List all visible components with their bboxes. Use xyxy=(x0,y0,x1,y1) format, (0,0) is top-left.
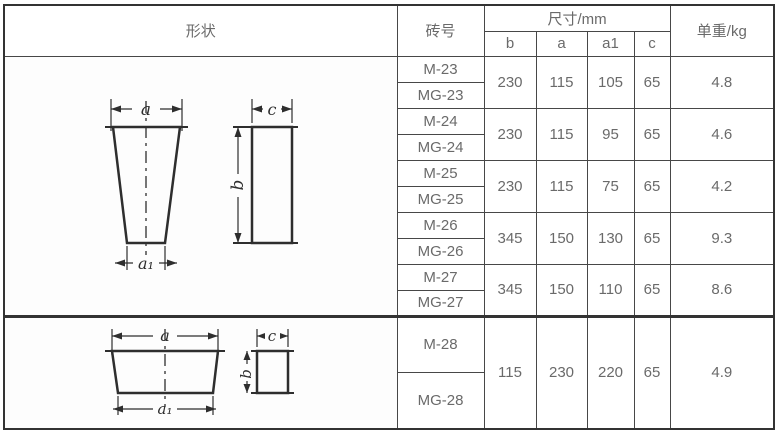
header-unit-weight: 单重/kg xyxy=(670,5,774,56)
dim-c-cell: 65 xyxy=(634,212,670,264)
header-brick-no: 砖号 xyxy=(397,5,484,56)
weight-cell: 4.6 xyxy=(670,108,774,160)
dim-label-a1: a₁ xyxy=(158,400,173,418)
dim-a-cell: 150 xyxy=(536,264,587,316)
flat-wedge-drawing: a a₁ c b xyxy=(5,318,396,428)
brick-no-cell: MG-25 xyxy=(397,186,484,212)
dim-a-cell: 150 xyxy=(536,212,587,264)
dim-c-cell: 65 xyxy=(634,264,670,316)
brick-no-cell: MG-27 xyxy=(397,290,484,316)
dim-label-c: c xyxy=(268,327,277,345)
brick-no-cell: MG-24 xyxy=(397,134,484,160)
dim-a-cell: 115 xyxy=(536,160,587,212)
weight-cell: 8.6 xyxy=(670,264,774,316)
header-dim-a1: a1 xyxy=(587,31,634,56)
weight-cell: 4.8 xyxy=(670,56,774,108)
brick-no-cell: M-25 xyxy=(397,160,484,186)
dim-a-cell: 230 xyxy=(536,316,587,429)
dim-c-cell: 65 xyxy=(634,316,670,429)
dim-c-cell: 65 xyxy=(634,108,670,160)
brick-no-cell: M-23 xyxy=(397,56,484,82)
dim-b-cell: 345 xyxy=(484,264,536,316)
tapered-wedge-drawing: a a₁ c b xyxy=(5,57,396,315)
dim-label-c: c xyxy=(268,100,277,119)
header-dimensions: 尺寸/mm xyxy=(484,5,670,31)
dim-a-cell: 115 xyxy=(536,56,587,108)
dim-b-cell: 230 xyxy=(484,108,536,160)
brick-no-cell: MG-26 xyxy=(397,238,484,264)
header-shape: 形状 xyxy=(4,5,397,56)
brick-no-cell: M-24 xyxy=(397,108,484,134)
dim-label-a: a xyxy=(141,100,151,120)
dim-a1-cell: 220 xyxy=(587,316,634,429)
brick-no-cell: M-27 xyxy=(397,264,484,290)
dim-a-cell: 115 xyxy=(536,108,587,160)
shape-diagram-tapered-wedge: a a₁ c b xyxy=(4,56,397,316)
dim-b-cell: 345 xyxy=(484,212,536,264)
weight-cell: 4.9 xyxy=(670,316,774,429)
dim-label-b: b xyxy=(237,369,255,379)
page: 形状 砖号 尺寸/mm 单重/kg b a a1 c xyxy=(0,0,780,434)
shape-diagram-flat-wedge: a a₁ c b xyxy=(4,316,397,429)
dim-b-cell: 230 xyxy=(484,160,536,212)
dim-label-a1: a₁ xyxy=(138,254,154,273)
brick-spec-table: 形状 砖号 尺寸/mm 单重/kg b a a1 c xyxy=(3,4,775,430)
header-dim-c: c xyxy=(634,31,670,56)
header-dim-a: a xyxy=(536,31,587,56)
brick-no-cell: M-28 xyxy=(397,316,484,372)
dim-b-cell: 230 xyxy=(484,56,536,108)
dim-a1-cell: 95 xyxy=(587,108,634,160)
weight-cell: 4.2 xyxy=(670,160,774,212)
dim-a1-cell: 110 xyxy=(587,264,634,316)
dim-b-cell: 115 xyxy=(484,316,536,429)
dim-a1-cell: 105 xyxy=(587,56,634,108)
brick-no-cell: M-26 xyxy=(397,212,484,238)
dim-label-a: a xyxy=(160,326,170,345)
dim-a1-cell: 75 xyxy=(587,160,634,212)
weight-cell: 9.3 xyxy=(670,212,774,264)
brick-no-cell: MG-28 xyxy=(397,372,484,428)
dim-c-cell: 65 xyxy=(634,160,670,212)
brick-no-cell: MG-23 xyxy=(397,82,484,108)
dim-a1-cell: 130 xyxy=(587,212,634,264)
header-dim-b: b xyxy=(484,31,536,56)
dim-label-b: b xyxy=(228,179,248,190)
dim-c-cell: 65 xyxy=(634,56,670,108)
